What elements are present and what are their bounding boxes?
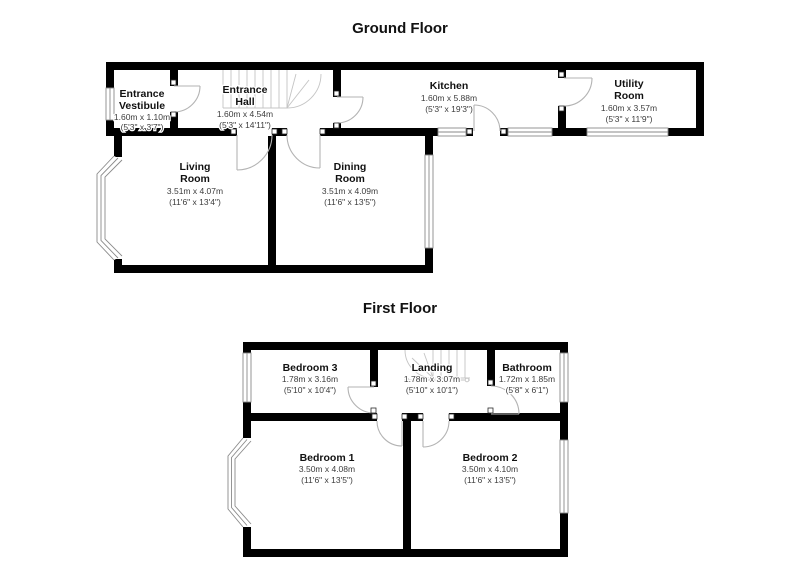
stair-curve	[287, 74, 321, 108]
wall	[696, 62, 704, 136]
door-arc	[337, 97, 363, 123]
front-entrance-window	[106, 88, 114, 120]
bedroom-2-label: Bedroom 2 3.50m x 4.10m (11'6" x 13'5")	[462, 452, 518, 485]
floorplan-canvas: Ground Floor	[0, 0, 800, 582]
living-room-door	[237, 135, 272, 170]
wall	[243, 342, 568, 350]
room-dimension-metric: 1.72m x 1.85m	[499, 374, 555, 384]
room-name: Bedroom 2	[463, 452, 518, 464]
wall	[552, 128, 587, 136]
room-dimension-imperial: (11'6" x 13'4")	[169, 197, 221, 207]
door-jamb	[371, 408, 376, 413]
wall	[268, 136, 276, 265]
room-name: Bathroom	[502, 362, 552, 374]
room-dimension-metric: 3.50m x 4.10m	[462, 464, 518, 474]
door-jamb	[559, 106, 564, 111]
room-dimension-imperial: (5'10" x 10'1")	[406, 385, 458, 395]
door-jamb	[334, 123, 339, 128]
landing-label: Landing 1.78m x 3.07m (5'10" x 10'1")	[404, 362, 460, 395]
room-name: Room	[180, 173, 210, 185]
wall	[106, 62, 704, 70]
room-dimension-metric: 1.78m x 3.07m	[404, 374, 460, 384]
room-name: Utility	[614, 78, 643, 90]
room-dimension-metric: 1.60m x 5.88m	[421, 93, 477, 103]
door-arc	[237, 135, 272, 170]
floorplan-page: Ground Floor	[0, 0, 800, 582]
wall	[425, 136, 433, 155]
wall	[243, 342, 251, 353]
door-jamb	[171, 80, 176, 85]
room-dimension-metric: 3.50m x 4.08m	[299, 464, 355, 474]
door-jamb	[334, 91, 339, 96]
room-dimension-metric: 1.78m x 3.16m	[282, 374, 338, 384]
door-arc	[377, 421, 402, 446]
bedroom-1-bay-window	[228, 438, 251, 527]
room-name: Living	[180, 161, 211, 173]
door-jamb	[467, 129, 472, 134]
vestibule-hall-door	[174, 86, 200, 112]
stair-baluster	[465, 378, 469, 382]
wall	[560, 342, 568, 353]
dining-room-door	[287, 135, 320, 168]
door-arc	[423, 421, 449, 447]
door-jamb	[282, 129, 287, 134]
wall	[425, 248, 433, 265]
kitchen-window-1	[438, 128, 466, 136]
room-dimension-metric: 1.60m x 4.54m	[217, 109, 273, 119]
entrance-vestibule-label: Entrance Vestibule 1.60m x 1.10m (5'3" x…	[114, 88, 170, 132]
room-name: Kitchen	[430, 80, 469, 92]
room-name: Room	[614, 90, 644, 102]
room-name: Dining	[334, 161, 367, 173]
door-jamb	[418, 414, 423, 419]
bathroom-window	[560, 353, 568, 402]
dining-room-label: Dining Room 3.51m x 4.09m (11'6" x 13'5"…	[322, 161, 378, 207]
bedroom-3-window	[243, 353, 251, 402]
door-jamb	[501, 129, 506, 134]
room-dimension-imperial: (5'3" x 11'9")	[606, 114, 653, 124]
wall	[114, 136, 122, 157]
door-jamb	[449, 414, 454, 419]
utility-room-door	[564, 78, 592, 106]
wall	[668, 128, 704, 136]
door-jamb	[559, 72, 564, 77]
room-name: Vestibule	[119, 100, 165, 112]
room-name: Hall	[235, 96, 254, 108]
bedroom-1-label: Bedroom 1 3.50m x 4.08m (11'6" x 13'5")	[299, 452, 355, 485]
first-floor-plan: First Floor	[228, 300, 568, 557]
bedroom-3-door	[348, 387, 374, 413]
door-arc	[474, 105, 500, 131]
room-dimension-imperial: (5'10" x 10'4")	[284, 385, 336, 395]
wall	[106, 62, 114, 88]
door-jamb	[488, 408, 493, 413]
door-jamb	[171, 112, 176, 117]
room-dimension-imperial: (11'6" x 13'5")	[324, 197, 376, 207]
entrance-hall-label: Entrance Hall 1.60m x 4.54m (5'3" x 14'1…	[217, 84, 273, 130]
room-dimension-metric: 3.51m x 4.09m	[322, 186, 378, 196]
bathroom-label: Bathroom 1.72m x 1.85m (5'8" x 6'1")	[499, 362, 555, 395]
wall	[320, 128, 438, 136]
bedroom-2-window	[560, 440, 568, 513]
room-name: Entrance	[120, 88, 165, 100]
room-name: Entrance	[223, 84, 268, 96]
room-name: Room	[335, 173, 365, 185]
door-jamb	[320, 129, 325, 134]
utility-room-window	[587, 128, 668, 136]
door-arc	[564, 78, 592, 106]
kitchen-garden-door	[474, 105, 500, 131]
kitchen-label: Kitchen 1.60m x 5.88m (5'3" x 19'3")	[421, 80, 477, 114]
door-jamb	[272, 129, 277, 134]
ground-floor-labels: Entrance Vestibule 1.60m x 1.10m (5'3" x…	[114, 78, 657, 207]
kitchen-door	[337, 97, 363, 123]
room-dimension-imperial: (5'8" x 6'1")	[506, 385, 549, 395]
room-name: Landing	[412, 362, 453, 374]
first-floor-labels: Bedroom 3 1.78m x 3.16m (5'10" x 10'4") …	[282, 362, 555, 485]
first-floor-title: First Floor	[363, 300, 437, 317]
wall	[243, 413, 377, 421]
door-arc	[174, 86, 200, 112]
living-room-label: Living Room 3.51m x 4.07m (11'6" x 13'4"…	[167, 161, 223, 207]
bedroom-3-label: Bedroom 3 1.78m x 3.16m (5'10" x 10'4")	[282, 362, 338, 395]
room-dimension-metric: 1.60m x 3.57m	[601, 103, 657, 113]
kitchen-window-2	[508, 128, 552, 136]
wall	[243, 549, 568, 557]
bedroom-2-door	[423, 421, 449, 447]
utility-room-label: Utility Room 1.60m x 3.57m (5'3" x 11'9"…	[601, 78, 657, 124]
door-arc	[348, 387, 374, 413]
wall	[114, 265, 433, 273]
ground-floor-title: Ground Floor	[352, 20, 448, 37]
wall	[560, 513, 568, 549]
door-jamb	[372, 414, 377, 419]
door-jamb	[371, 381, 376, 386]
bay-inner	[105, 160, 122, 256]
living-room-bay-window	[97, 156, 122, 260]
room-dimension-imperial: (5'3" x 3'7")	[121, 122, 164, 132]
room-dimension-imperial: (5'3" x 19'3")	[425, 104, 473, 114]
room-dimension-imperial: (11'6" x 13'5")	[301, 475, 353, 485]
door-arc	[287, 135, 320, 168]
room-name: Bedroom 1	[300, 452, 355, 464]
room-dimension-metric: 3.51m x 4.07m	[167, 186, 223, 196]
bedroom-1-door	[377, 421, 402, 446]
room-dimension-imperial: (5'3" x 14'11")	[219, 120, 271, 130]
door-jamb	[488, 380, 493, 385]
wall	[403, 421, 411, 549]
room-name: Bedroom 3	[283, 362, 338, 374]
room-dimension-metric: 1.60m x 1.10m	[114, 112, 170, 122]
ground-floor-plan: Ground Floor	[97, 20, 704, 273]
dining-room-window	[425, 155, 433, 248]
door-jamb	[402, 414, 407, 419]
wall	[243, 527, 251, 549]
room-dimension-imperial: (11'6" x 13'5")	[464, 475, 516, 485]
